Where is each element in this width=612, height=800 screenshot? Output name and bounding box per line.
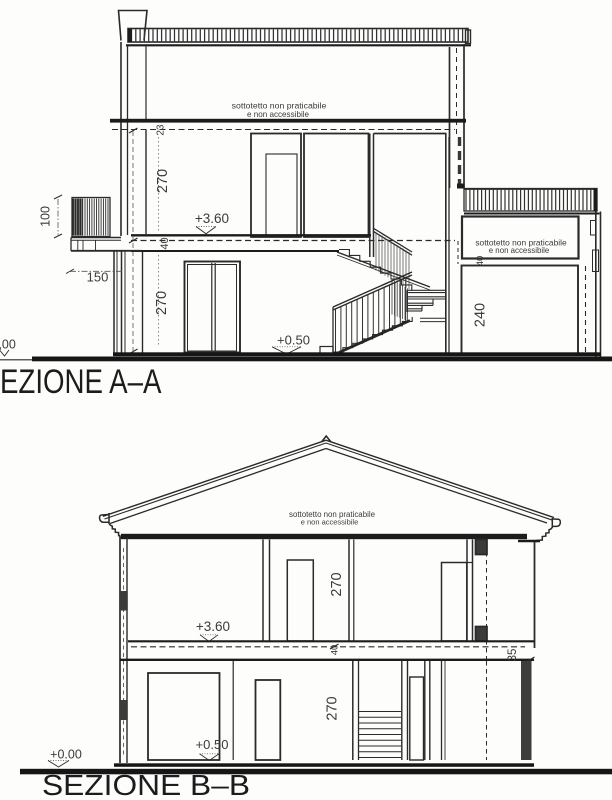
svg-text:35: 35 [507,649,519,662]
svg-text:+0.00: +0.00 [50,748,82,762]
svg-text:40: 40 [330,645,341,656]
svg-text:e non accessibile: e non accessibile [301,518,359,527]
svg-text:0,00: 0,00 [0,338,16,352]
svg-text:+3.60: +3.60 [196,619,230,634]
svg-text:150: 150 [87,270,109,285]
svg-text:23: 23 [156,124,167,136]
svg-text:240: 240 [473,303,489,327]
svg-text:270: 270 [325,696,341,720]
svg-text:SEZIONE B–B: SEZIONE B–B [42,770,250,800]
svg-text:270: 270 [155,169,171,193]
svg-text:sottotetto non praticabile: sottotetto non praticabile [232,101,327,111]
svg-text:270: 270 [329,572,345,596]
svg-text:e non accessibile: e non accessibile [489,246,550,255]
svg-text:+0.50: +0.50 [196,737,229,752]
svg-text:100: 100 [39,206,53,227]
svg-text:e non accessibile: e non accessibile [247,110,310,119]
svg-text:+3.60: +3.60 [195,211,229,226]
svg-text:SEZIONE A–A: SEZIONE A–A [0,363,162,401]
svg-text:+0.50: +0.50 [277,333,310,348]
svg-text:40: 40 [159,237,171,249]
svg-text:270: 270 [154,291,170,315]
